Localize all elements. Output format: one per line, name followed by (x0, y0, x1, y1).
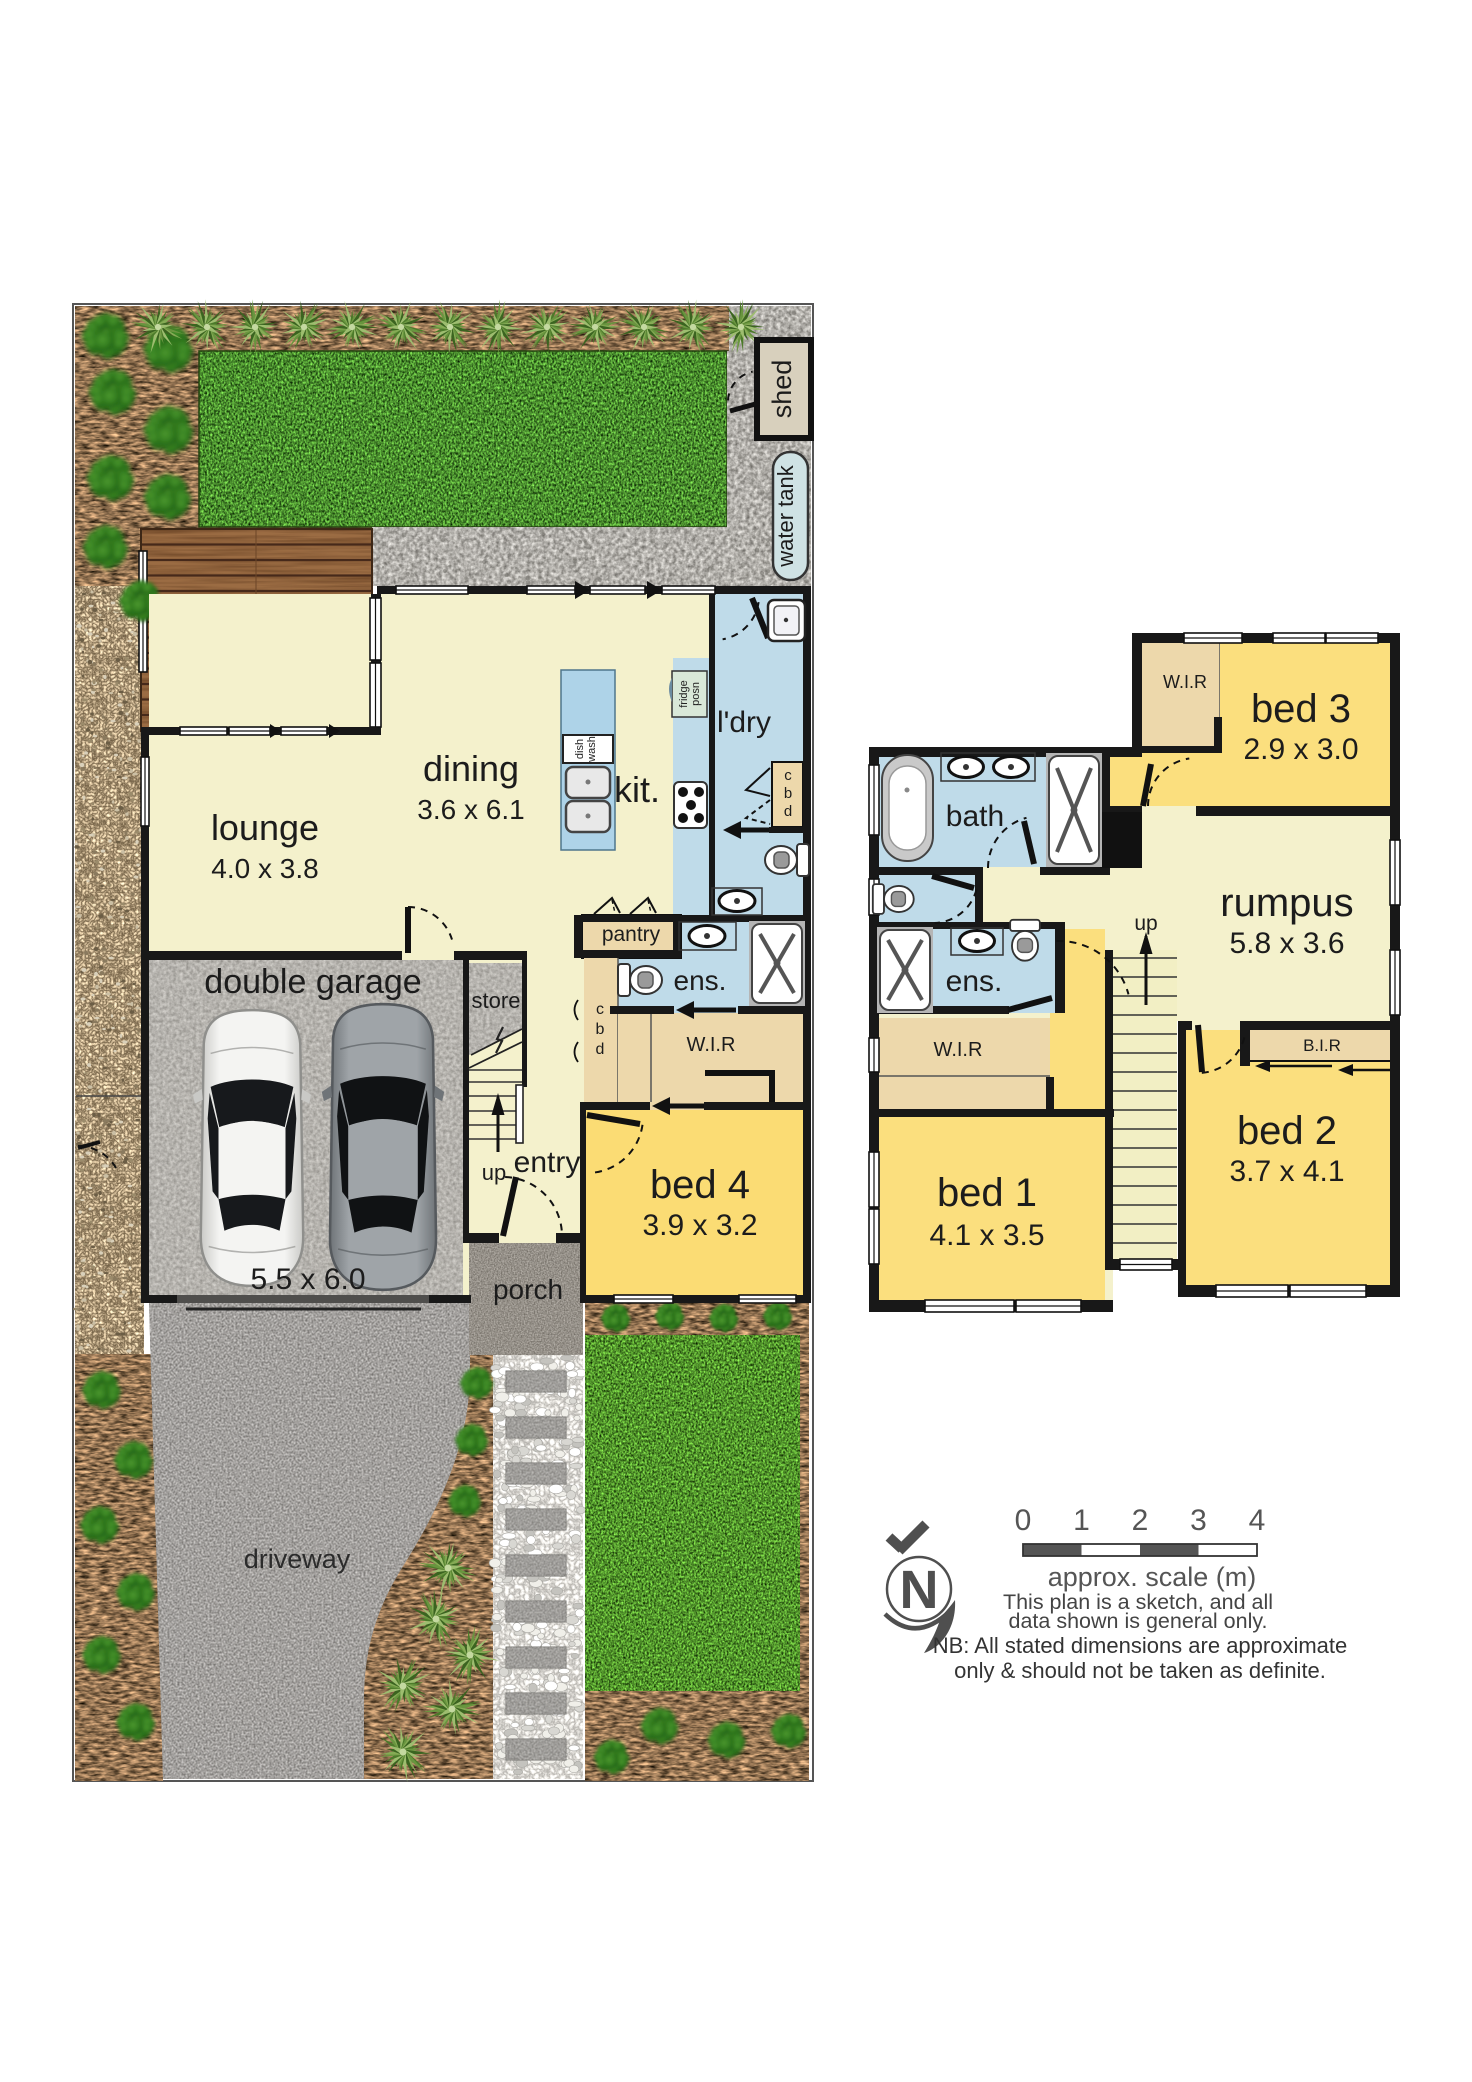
svg-text:W.I.R: W.I.R (687, 1034, 736, 1056)
svg-text:fridge: fridge (678, 680, 690, 708)
svg-text:store: store (472, 988, 521, 1013)
svg-text:entry: entry (514, 1146, 581, 1179)
svg-text:b: b (596, 1021, 605, 1038)
svg-text:approx. scale (m): approx. scale (m) (1048, 1562, 1257, 1592)
svg-text:5.5 x 6.0: 5.5 x 6.0 (250, 1263, 365, 1296)
svg-text:bed 3: bed 3 (1251, 687, 1351, 731)
svg-text:1: 1 (1073, 1504, 1090, 1537)
svg-text:5.8 x 3.6: 5.8 x 3.6 (1229, 927, 1344, 960)
svg-text:N: N (900, 1560, 939, 1620)
svg-text:lounge: lounge (211, 807, 319, 848)
svg-text:only & should not be taken as: only & should not be taken as definite. (954, 1658, 1326, 1683)
svg-text:2.9 x 3.0: 2.9 x 3.0 (1243, 733, 1358, 766)
svg-text:c: c (596, 1001, 604, 1018)
svg-text:bed 1: bed 1 (937, 1171, 1037, 1215)
svg-text:driveway: driveway (244, 1544, 351, 1574)
svg-text:shed: shed (767, 360, 797, 419)
svg-text:3.6 x 6.1: 3.6 x 6.1 (417, 794, 524, 825)
svg-text:3.7 x 4.1: 3.7 x 4.1 (1229, 1155, 1344, 1188)
svg-text:rumpus: rumpus (1220, 881, 1353, 925)
svg-text:l'dry: l'dry (717, 706, 771, 739)
svg-text:4: 4 (1249, 1504, 1266, 1537)
svg-text:ens.: ens. (674, 965, 727, 996)
svg-text:3: 3 (1190, 1504, 1207, 1537)
svg-text:pantry: pantry (602, 923, 661, 946)
svg-text:NB: All stated dimensions are: NB: All stated dimensions are approximat… (933, 1633, 1348, 1658)
svg-text:dining: dining (423, 748, 519, 789)
svg-text:d: d (596, 1041, 605, 1058)
svg-text:double garage: double garage (204, 963, 421, 1001)
svg-text:wash: wash (586, 736, 598, 763)
svg-text:4.0 x 3.8: 4.0 x 3.8 (211, 853, 318, 884)
svg-text:c: c (784, 767, 792, 784)
svg-text:b: b (784, 785, 792, 802)
svg-text:4.1 x 3.5: 4.1 x 3.5 (929, 1219, 1044, 1252)
svg-text:d: d (784, 803, 792, 820)
svg-text:ens.: ens. (946, 965, 1003, 998)
svg-text:up: up (1134, 912, 1157, 935)
svg-text:posn: posn (690, 682, 702, 706)
svg-text:data shown is general only.: data shown is general only. (1009, 1609, 1268, 1633)
svg-text:water tank: water tank (773, 464, 798, 567)
svg-text:W.I.R: W.I.R (1163, 672, 1207, 692)
svg-text:kit.: kit. (614, 769, 660, 810)
svg-text:3.9 x 3.2: 3.9 x 3.2 (642, 1209, 757, 1242)
svg-text:bed 2: bed 2 (1237, 1109, 1337, 1153)
svg-text:W.I.R: W.I.R (934, 1039, 983, 1061)
svg-text:bath: bath (946, 800, 1004, 833)
svg-text:up: up (482, 1160, 506, 1185)
svg-text:B.I.R: B.I.R (1303, 1036, 1341, 1055)
svg-text:0: 0 (1015, 1504, 1032, 1537)
svg-text:dish: dish (574, 739, 586, 759)
svg-text:porch: porch (493, 1274, 563, 1305)
svg-text:bed 4: bed 4 (650, 1163, 750, 1207)
svg-text:2: 2 (1132, 1504, 1149, 1537)
